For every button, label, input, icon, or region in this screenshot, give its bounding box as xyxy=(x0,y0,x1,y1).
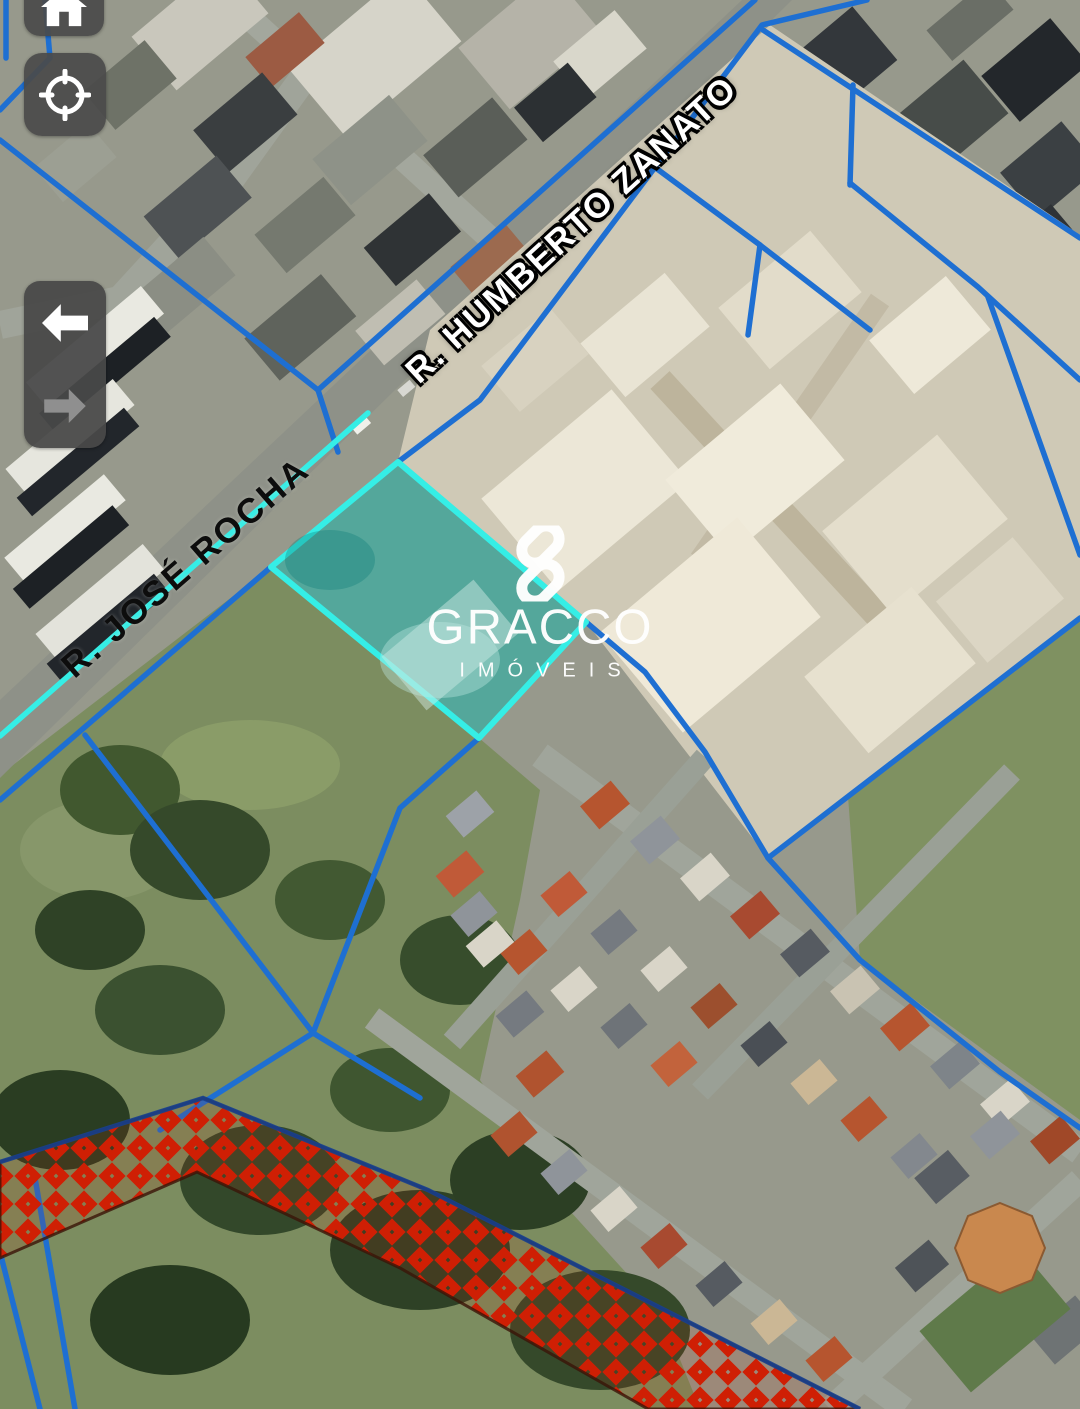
back-button[interactable] xyxy=(24,281,106,365)
home-button[interactable] xyxy=(24,0,104,36)
locate-button[interactable] xyxy=(24,53,106,136)
satellite-map xyxy=(0,0,1080,1409)
arrow-left-icon xyxy=(42,304,88,342)
locate-icon xyxy=(39,69,91,121)
history-nav-group xyxy=(24,281,106,448)
home-icon xyxy=(41,0,87,27)
round-building xyxy=(955,1203,1045,1293)
arrow-right-icon xyxy=(44,389,86,423)
forward-button[interactable] xyxy=(24,365,106,449)
map-canvas[interactable]: R. HUMBERTO ZANATO R. JOSÉ ROCHA GRACCO … xyxy=(0,0,1080,1409)
